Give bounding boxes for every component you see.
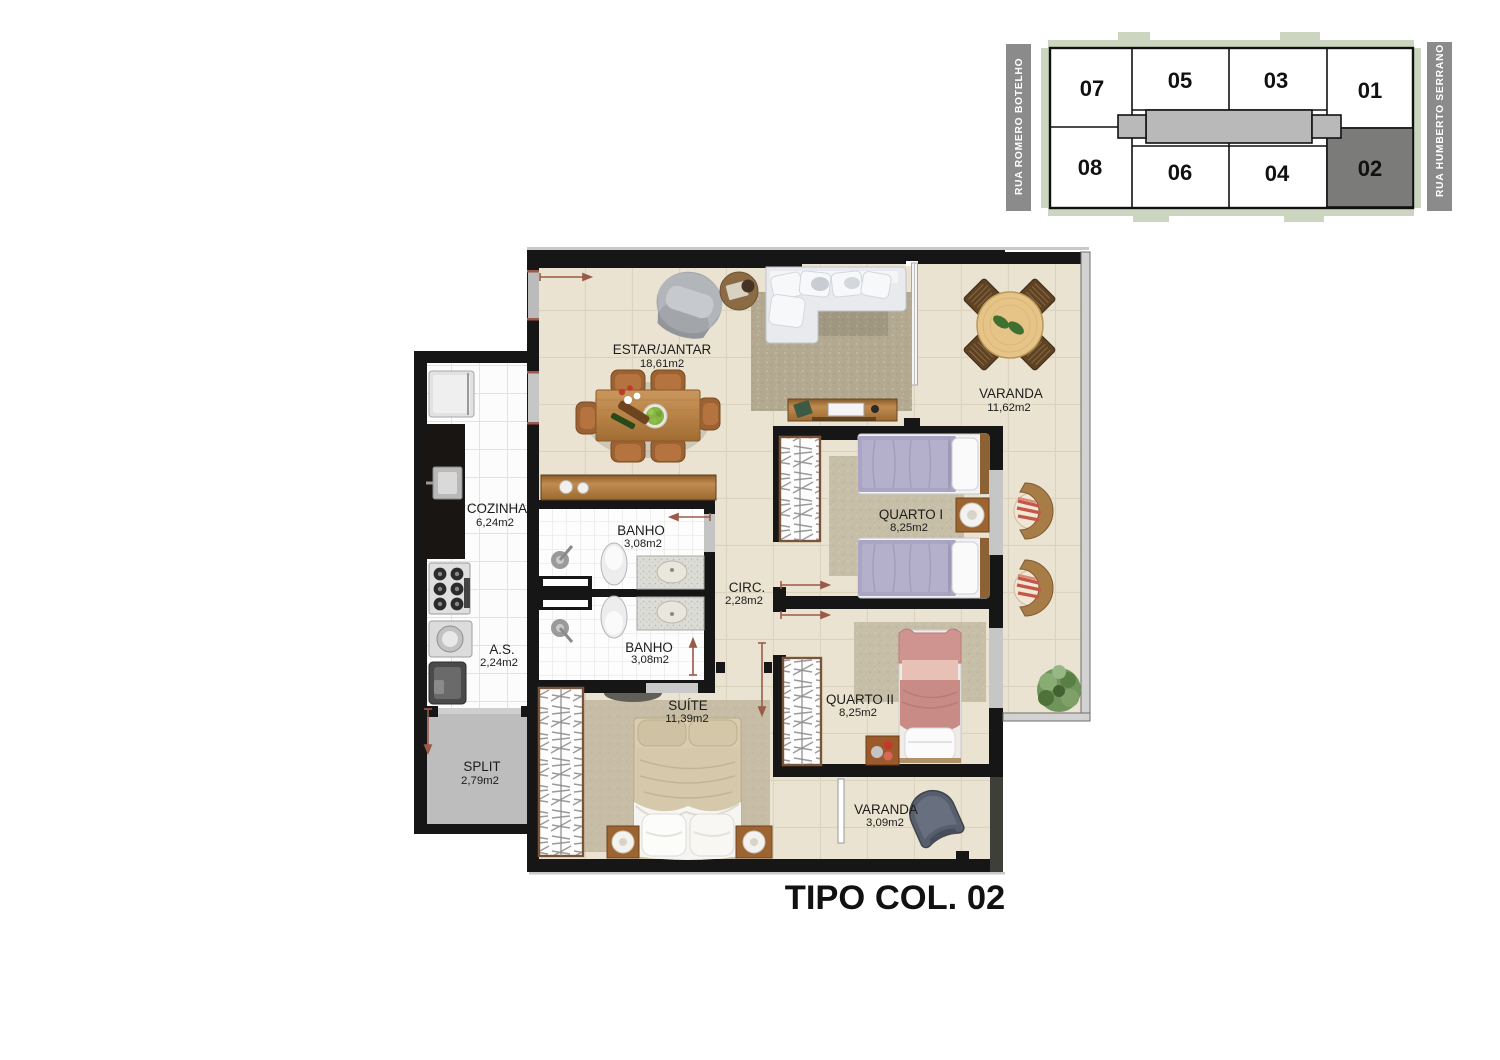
svg-text:3,08m2: 3,08m2	[631, 654, 669, 666]
svg-text:06: 06	[1168, 160, 1192, 185]
svg-text:SPLIT: SPLIT	[463, 759, 500, 774]
svg-text:QUARTO I: QUARTO I	[879, 507, 943, 522]
svg-text:02: 02	[1358, 156, 1382, 181]
svg-text:3,09m2: 3,09m2	[866, 817, 904, 829]
svg-text:08: 08	[1078, 155, 1102, 180]
svg-text:07: 07	[1080, 76, 1104, 101]
svg-text:RUA HUMBERTO SERRANO: RUA HUMBERTO SERRANO	[1435, 44, 1446, 197]
svg-text:QUARTO II: QUARTO II	[826, 692, 894, 707]
svg-text:VARANDA: VARANDA	[979, 386, 1043, 401]
svg-text:3,08m2: 3,08m2	[624, 538, 662, 550]
svg-text:TIPO COL. 02: TIPO COL. 02	[785, 879, 1005, 917]
svg-text:18,61m2: 18,61m2	[640, 358, 684, 370]
svg-text:11,39m2: 11,39m2	[665, 713, 708, 725]
svg-text:01: 01	[1358, 78, 1382, 103]
svg-text:BANHO: BANHO	[625, 640, 673, 655]
svg-text:COZINHA: COZINHA	[467, 501, 527, 516]
svg-text:04: 04	[1265, 161, 1290, 186]
svg-text:2,28m2: 2,28m2	[725, 595, 763, 607]
svg-text:SUÍTE: SUÍTE	[668, 698, 708, 713]
svg-text:BANHO: BANHO	[617, 523, 665, 538]
svg-text:VARANDA: VARANDA	[854, 802, 918, 817]
svg-text:8,25m2: 8,25m2	[839, 707, 877, 719]
svg-text:RUA ROMERO BOTELHO: RUA ROMERO BOTELHO	[1014, 58, 1025, 195]
svg-text:2,79m2: 2,79m2	[461, 775, 499, 787]
svg-text:8,25m2: 8,25m2	[890, 522, 928, 534]
svg-text:2,24m2: 2,24m2	[480, 657, 518, 669]
svg-text:6,24m2: 6,24m2	[476, 517, 514, 529]
svg-text:05: 05	[1168, 68, 1192, 93]
svg-text:11,62m2: 11,62m2	[987, 402, 1030, 414]
svg-text:A.S.: A.S.	[489, 642, 514, 657]
svg-text:03: 03	[1264, 68, 1288, 93]
svg-text:ESTAR/JANTAR: ESTAR/JANTAR	[613, 342, 712, 357]
svg-text:CIRC.: CIRC.	[729, 580, 765, 595]
